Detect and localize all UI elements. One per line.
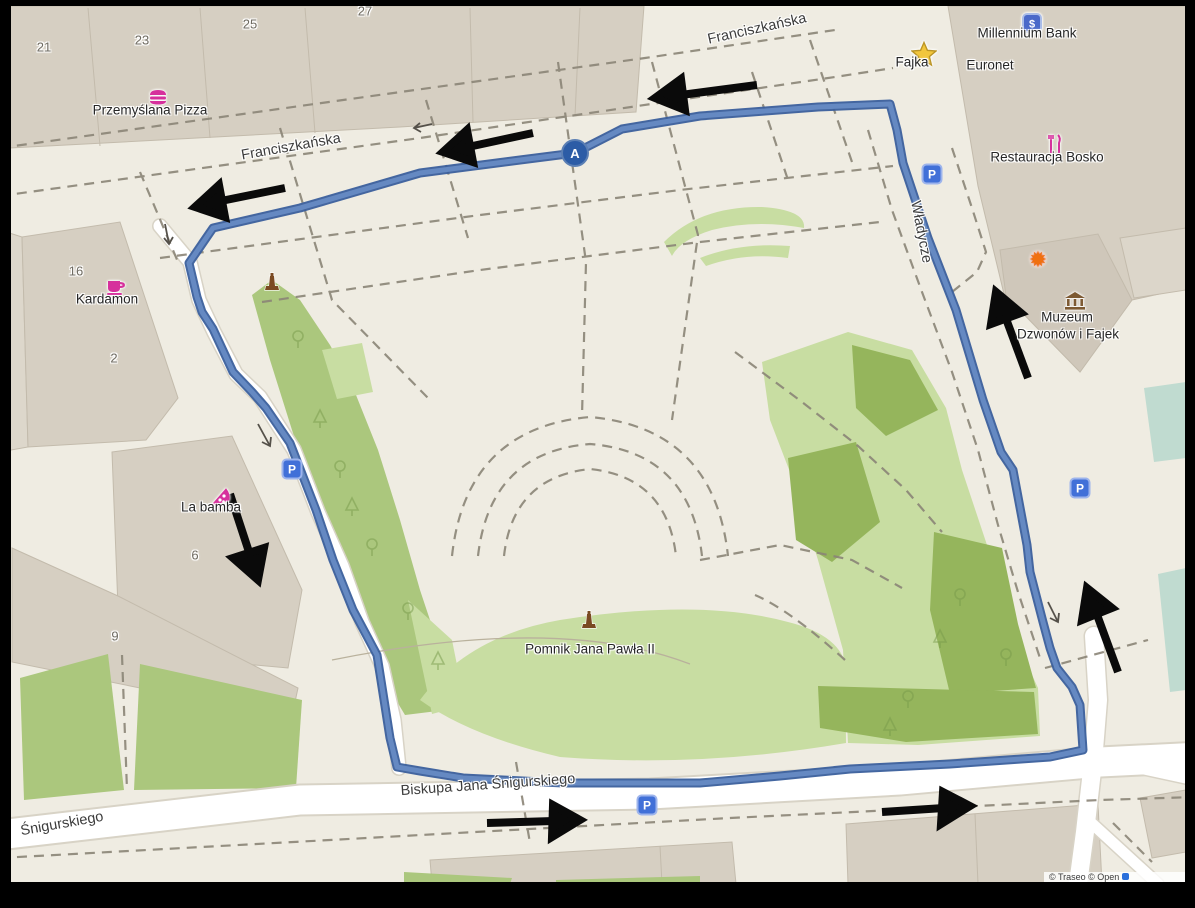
map-viewport[interactable]: Franciszkańska Franciszkańska Władycze B…	[0, 0, 1195, 908]
parking-icon: P	[282, 459, 303, 480]
frame-left	[0, 0, 11, 908]
parking-icon: P	[637, 795, 658, 816]
map-canvas[interactable]	[0, 0, 1195, 908]
route-start-marker[interactable]: A	[561, 139, 589, 167]
frame-right	[1185, 0, 1195, 908]
attribution-icon	[1122, 873, 1129, 880]
frame-bottom	[0, 882, 1195, 908]
parking-icon: P	[1070, 478, 1091, 499]
frame-top	[0, 0, 1195, 6]
parking-icon: P	[922, 164, 943, 185]
